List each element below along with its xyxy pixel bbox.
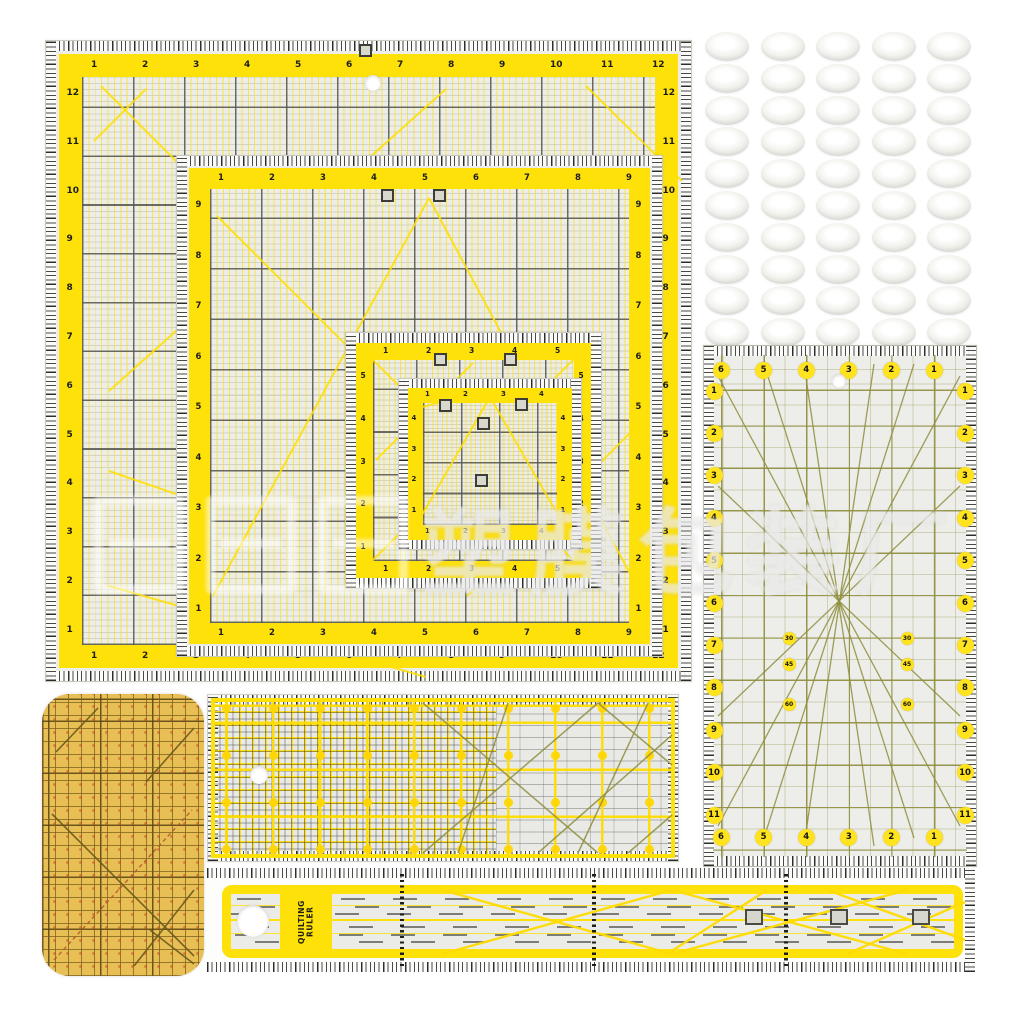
grip-disc xyxy=(761,223,805,252)
scale-number: 5 xyxy=(67,431,73,440)
diagonal-line xyxy=(458,703,508,853)
diagonal-line xyxy=(578,703,648,853)
number-circle: 45 xyxy=(901,658,914,671)
scale-number: 2 xyxy=(361,500,366,508)
scale-number: 3 xyxy=(320,629,326,638)
scale-number: 5 xyxy=(663,431,669,440)
scale-number: 2 xyxy=(142,61,148,70)
grip-disc xyxy=(927,191,971,220)
scale-number: 4 xyxy=(371,174,377,183)
grip-disc xyxy=(927,64,971,93)
grip-disc xyxy=(872,255,916,284)
scale-number: 7 xyxy=(524,174,530,183)
scale-number: 1 xyxy=(91,652,97,661)
grip-disc xyxy=(705,255,749,284)
scale-number: 12 xyxy=(652,61,665,70)
grip-disc xyxy=(927,318,971,347)
scale-number: 2 xyxy=(663,577,669,586)
scale-number: 1 xyxy=(425,391,430,398)
scale-number: 4 xyxy=(539,391,544,398)
grip-disc xyxy=(927,223,971,252)
grip-disc xyxy=(761,159,805,188)
logo-square-marker xyxy=(359,44,372,57)
scale-number: 11 xyxy=(67,138,80,147)
scale-number: 4 xyxy=(371,629,377,638)
logo-square-marker xyxy=(504,353,517,366)
scale-number: 9 xyxy=(499,61,505,70)
scale-number: 9 xyxy=(67,235,73,244)
grip-disc xyxy=(872,64,916,93)
number-circle: 5 xyxy=(755,362,772,379)
number-circle: 9 xyxy=(706,722,723,739)
scale-number: 4 xyxy=(361,415,366,423)
number-circle: 60 xyxy=(901,698,914,711)
scale-number: 1 xyxy=(561,507,566,514)
number-circle: 2 xyxy=(706,425,723,442)
scale-number: 2 xyxy=(463,391,468,398)
number-circle: 45 xyxy=(783,658,796,671)
number-circle: 1 xyxy=(926,362,943,379)
scale-number: 1 xyxy=(425,528,430,535)
grip-disc xyxy=(761,127,805,156)
scale-number: 11 xyxy=(663,138,676,147)
grip-disc xyxy=(872,159,916,188)
diagonal-line xyxy=(847,902,965,954)
diagonal-line xyxy=(415,397,459,409)
scale-number: 4 xyxy=(244,61,250,70)
number-circle: 4 xyxy=(798,362,815,379)
grip-disc xyxy=(705,32,749,61)
grip-disc xyxy=(872,96,916,125)
scale-number: 3 xyxy=(412,446,417,453)
grip-disc xyxy=(872,127,916,156)
scale-number: 2 xyxy=(636,555,642,564)
number-circle: 8 xyxy=(957,679,974,696)
scale-number: 3 xyxy=(501,528,506,535)
scale-number: 7 xyxy=(663,333,669,342)
logo-square-marker xyxy=(434,353,447,366)
scale-number: 1 xyxy=(196,605,202,614)
scale-number: 10 xyxy=(663,187,676,196)
scale-number: 8 xyxy=(67,284,73,293)
number-circle: 11 xyxy=(706,807,723,824)
grip-disc xyxy=(816,64,860,93)
scale-number: 6 xyxy=(636,353,642,362)
scale-number: 10 xyxy=(67,187,80,196)
scale-number: 6 xyxy=(346,61,352,70)
scale-number: 8 xyxy=(448,61,454,70)
scale-number: 4 xyxy=(67,479,73,488)
scale-number: 3 xyxy=(320,174,326,183)
scale-number: 5 xyxy=(555,347,560,355)
diagonal-line xyxy=(94,89,146,141)
scale-number: 2 xyxy=(463,528,468,535)
scale-number: 3 xyxy=(636,504,642,513)
grip-disc xyxy=(816,159,860,188)
number-circle: 7 xyxy=(957,637,974,654)
number-circle: 60 xyxy=(783,698,796,711)
diagonal-line xyxy=(598,703,672,765)
product-photo-canvas: 1122334455667788991010111112121212111110… xyxy=(0,0,1024,1024)
number-circle: 9 xyxy=(957,722,974,739)
scale-number: 4 xyxy=(561,415,566,422)
scale-number: 6 xyxy=(67,382,73,391)
grip-disc xyxy=(816,127,860,156)
scale-number: 5 xyxy=(422,629,428,638)
scale-number: 1 xyxy=(663,626,669,635)
scale-number: 2 xyxy=(269,174,275,183)
scale-number: 7 xyxy=(196,302,202,311)
grip-disc xyxy=(927,286,971,315)
scale-number: 3 xyxy=(196,504,202,513)
number-circle: 4 xyxy=(798,829,815,846)
number-circle: 11 xyxy=(957,807,974,824)
scale-number: 3 xyxy=(361,458,366,466)
scale-number: 3 xyxy=(67,528,73,537)
heavy-tick-column xyxy=(400,874,404,966)
number-circle: 2 xyxy=(957,425,974,442)
number-circle: 2 xyxy=(883,829,900,846)
scale-number: 12 xyxy=(663,89,676,98)
logo-square-marker xyxy=(381,189,394,202)
number-circle: 3 xyxy=(957,467,974,484)
diagonal-line xyxy=(628,815,672,853)
number-circle: 5 xyxy=(957,552,974,569)
grip-disc xyxy=(816,255,860,284)
scale-number: 8 xyxy=(575,629,581,638)
scale-number: 3 xyxy=(561,446,566,453)
scale-number: 2 xyxy=(142,652,148,661)
number-circle: 30 xyxy=(783,632,796,645)
angle-lines xyxy=(208,695,678,861)
scale-number: 8 xyxy=(196,252,202,261)
hanging-hole xyxy=(365,75,381,91)
number-circle: 6 xyxy=(713,829,730,846)
number-circle: 3 xyxy=(840,829,857,846)
scale-number: 7 xyxy=(636,302,642,311)
diagonal-line xyxy=(54,810,192,960)
scale-number: 4 xyxy=(663,479,669,488)
scale-number: 2 xyxy=(426,565,431,573)
scale-number: 7 xyxy=(67,333,73,342)
scale-number: 4 xyxy=(539,528,544,535)
patchwork-ruler xyxy=(207,694,679,862)
number-circle: 6 xyxy=(706,595,723,612)
grip-disc xyxy=(761,32,805,61)
grip-disc xyxy=(761,96,805,125)
number-circle: 8 xyxy=(706,679,723,696)
diagonal-line xyxy=(490,397,565,527)
number-circle: 6 xyxy=(957,595,974,612)
grip-disc xyxy=(927,127,971,156)
diagonal-line xyxy=(146,728,194,782)
grip-disc xyxy=(761,255,805,284)
grip-disc xyxy=(927,32,971,61)
grip-disc xyxy=(705,286,749,315)
grip-disc xyxy=(761,64,805,93)
grip-disc xyxy=(927,96,971,125)
grip-disc xyxy=(761,191,805,220)
scale-number: 1 xyxy=(383,347,388,355)
logo-square-marker xyxy=(439,399,452,412)
heavy-tick-column xyxy=(784,874,788,966)
logo-square-marker xyxy=(477,417,490,430)
grip-disc xyxy=(705,64,749,93)
hanging-hole xyxy=(832,374,846,388)
scale-number: 4 xyxy=(636,454,642,463)
hot-ironing-pressing-ruler xyxy=(42,694,204,976)
scale-number: 2 xyxy=(561,476,566,483)
scale-number: 4 xyxy=(412,415,417,422)
grip-disc xyxy=(761,318,805,347)
scale-number: 5 xyxy=(555,565,560,573)
logo-square-marker xyxy=(515,398,528,411)
quilting-ruler-label-text: QUILTING RULER xyxy=(298,889,315,955)
grip-disc xyxy=(816,96,860,125)
scale-number: 12 xyxy=(67,89,80,98)
scale-number: 6 xyxy=(473,629,479,638)
grip-disc xyxy=(816,223,860,252)
scale-number: 5 xyxy=(295,61,301,70)
grip-disc xyxy=(816,286,860,315)
grip-disc xyxy=(705,191,749,220)
angle-fan-lines xyxy=(704,346,976,866)
scale-number: 1 xyxy=(361,543,366,551)
scale-number: 8 xyxy=(636,252,642,261)
scale-number: 2 xyxy=(412,476,417,483)
grip-discs-grid xyxy=(705,32,977,350)
scale-number: 11 xyxy=(601,61,614,70)
scale-number: 6 xyxy=(663,382,669,391)
grip-disc xyxy=(705,223,749,252)
number-circle: 5 xyxy=(755,829,772,846)
scale-number: 3 xyxy=(469,347,474,355)
scale-number: 2 xyxy=(269,629,275,638)
grip-disc xyxy=(816,318,860,347)
scale-number: 2 xyxy=(196,555,202,564)
scale-number: 5 xyxy=(196,403,202,412)
number-circle: 2 xyxy=(883,362,900,379)
number-circle: 1 xyxy=(706,383,723,400)
scale-number: 1 xyxy=(218,174,224,183)
scale-number: 3 xyxy=(193,61,199,70)
number-circle: 6 xyxy=(713,362,730,379)
scale-number: 9 xyxy=(626,629,632,638)
number-circle: 1 xyxy=(957,383,974,400)
grip-disc xyxy=(816,191,860,220)
quilting-ruler-label: QUILTING RULER xyxy=(280,889,332,955)
grip-disc xyxy=(705,127,749,156)
scale-number: 6 xyxy=(473,174,479,183)
number-circle: 3 xyxy=(706,467,723,484)
scale-number: 3 xyxy=(663,528,669,537)
number-circle: 1 xyxy=(926,829,943,846)
pressing-ruler-lines xyxy=(42,694,204,976)
scale-number: 3 xyxy=(501,391,506,398)
long-quilting-ruler: QUILTING RULER xyxy=(207,868,975,972)
grip-disc xyxy=(816,32,860,61)
scale-number: 5 xyxy=(361,372,366,380)
scale-number: 9 xyxy=(636,201,642,210)
scale-number: 8 xyxy=(575,174,581,183)
number-circle: 10 xyxy=(957,764,974,781)
logo-square-marker xyxy=(475,474,488,487)
number-circle: 5 xyxy=(706,552,723,569)
scale-number: 1 xyxy=(218,629,224,638)
scale-number: 1 xyxy=(67,626,73,635)
grip-disc xyxy=(872,318,916,347)
scale-number: 6 xyxy=(196,353,202,362)
scale-number: 9 xyxy=(626,174,632,183)
scale-number: 9 xyxy=(196,201,202,210)
grip-disc xyxy=(705,318,749,347)
grip-disc xyxy=(705,96,749,125)
scale-number: 3 xyxy=(469,565,474,573)
scale-number: 5 xyxy=(422,174,428,183)
diagonal-line xyxy=(56,708,98,752)
number-circle: 7 xyxy=(706,637,723,654)
scale-number: 2 xyxy=(426,347,431,355)
grip-disc xyxy=(927,255,971,284)
scale-number: 1 xyxy=(383,565,388,573)
bias-lines xyxy=(399,379,581,549)
number-circle: 4 xyxy=(706,510,723,527)
grip-disc xyxy=(872,32,916,61)
scale-number: 5 xyxy=(636,403,642,412)
scale-number: 7 xyxy=(524,629,530,638)
heavy-tick-column xyxy=(592,874,596,966)
number-circle: 4 xyxy=(957,510,974,527)
grip-disc xyxy=(927,159,971,188)
scale-number: 1 xyxy=(636,605,642,614)
diagonal-line xyxy=(134,890,194,966)
grip-disc xyxy=(705,159,749,188)
scale-number: 4 xyxy=(196,454,202,463)
scale-number: 8 xyxy=(663,284,669,293)
buttonhole-marker xyxy=(912,909,930,925)
grip-disc xyxy=(872,286,916,315)
scale-number: 4 xyxy=(512,565,517,573)
number-circle: 10 xyxy=(706,764,723,781)
scale-number: 2 xyxy=(67,577,73,586)
grip-disc xyxy=(872,223,916,252)
number-circle: 30 xyxy=(901,632,914,645)
scale-number: 10 xyxy=(550,61,563,70)
hanging-hole xyxy=(237,905,269,937)
scale-number: 9 xyxy=(663,235,669,244)
hanging-hole xyxy=(250,766,268,784)
buttonhole-marker xyxy=(745,909,763,925)
grip-disc xyxy=(872,191,916,220)
rectangular-ruler-6x12: 6543216543211234567891011123456789101130… xyxy=(703,345,977,867)
scale-number: 1 xyxy=(412,507,417,514)
scale-number: 1 xyxy=(91,61,97,70)
buttonhole-marker xyxy=(830,909,848,925)
logo-square-marker xyxy=(433,189,446,202)
scale-number: 7 xyxy=(397,61,403,70)
grip-disc xyxy=(761,286,805,315)
square-quilting-ruler-mini: 1122334444332211 xyxy=(398,378,582,550)
